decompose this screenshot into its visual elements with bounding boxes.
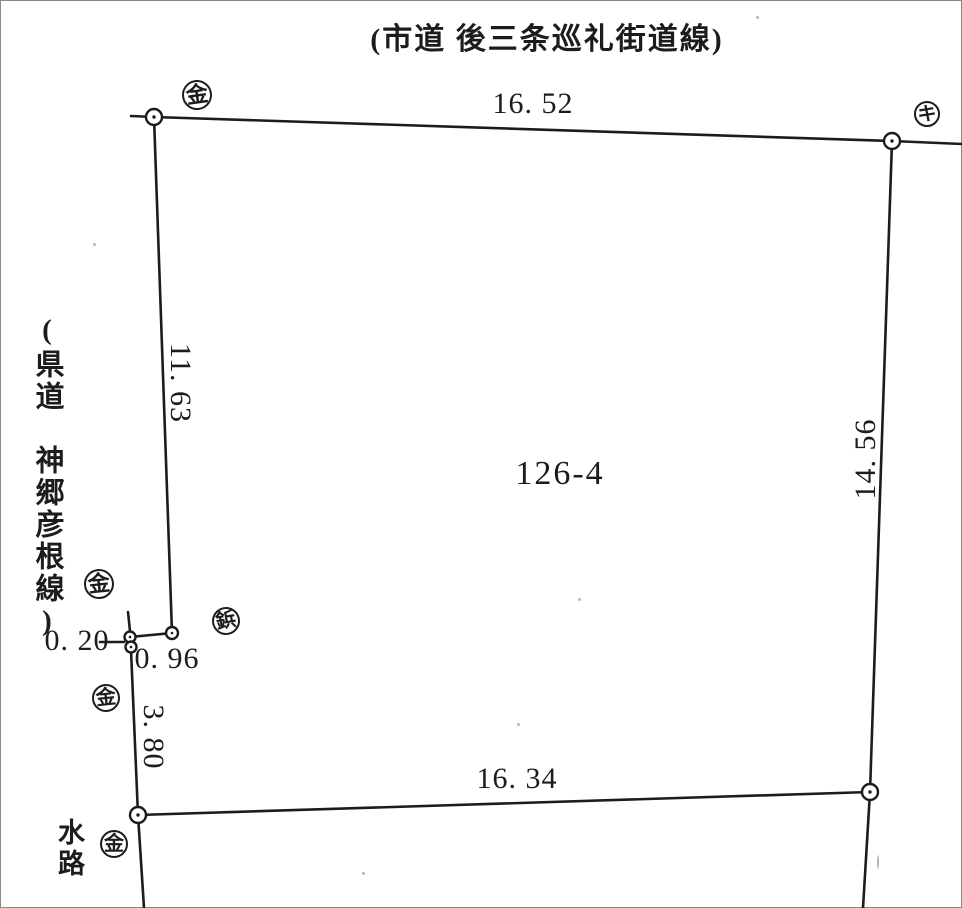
scan-speck bbox=[877, 855, 879, 869]
scan-speck bbox=[362, 872, 365, 875]
parcel-number: 126-4 bbox=[515, 455, 604, 493]
scan-speck bbox=[517, 723, 520, 726]
waterway-label: 水路 bbox=[50, 818, 89, 880]
scan-speck bbox=[578, 598, 581, 601]
scanned-survey-map: 金キ金鋲金金 16. 5211. 6314. 5616. 340. 960. 2… bbox=[0, 0, 962, 908]
road-name-top: (市道 後三条巡礼街道線) bbox=[370, 14, 723, 58]
scan-speck bbox=[756, 16, 759, 19]
scan-speck bbox=[93, 243, 96, 246]
scan-noise-layer bbox=[0, 0, 962, 908]
road-name-left: (県道 神郷彦根線) bbox=[26, 314, 68, 640]
